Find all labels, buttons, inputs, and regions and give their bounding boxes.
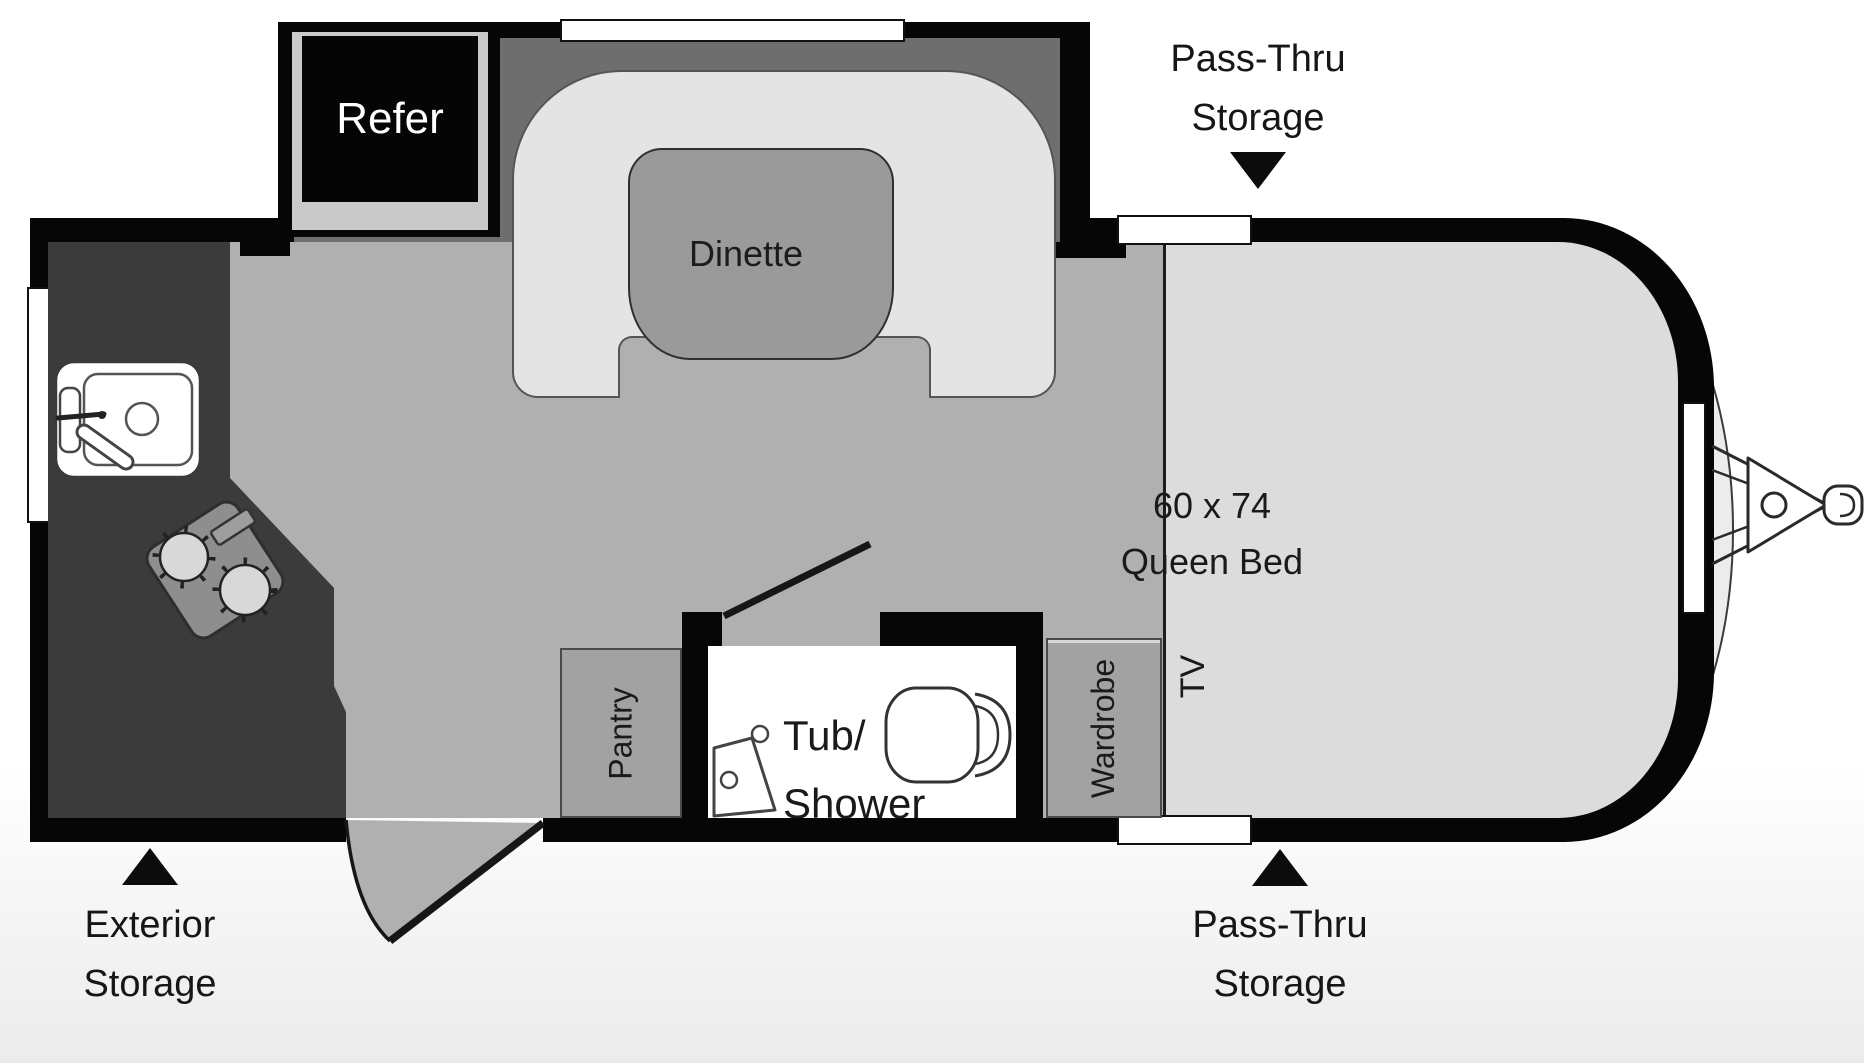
bathroom-sink-icon — [714, 726, 775, 816]
floorplan-canvas: Refer Dinette Tub/ Shower Pantry Wardrob… — [0, 0, 1864, 1063]
toilet-icon — [886, 688, 1010, 782]
hitch-icon — [1712, 446, 1862, 564]
entry-door-icon — [346, 820, 543, 941]
fixtures-overlay — [0, 0, 1864, 1063]
bathroom-door-icon — [724, 544, 870, 616]
kitchen-sink-icon — [56, 362, 200, 477]
